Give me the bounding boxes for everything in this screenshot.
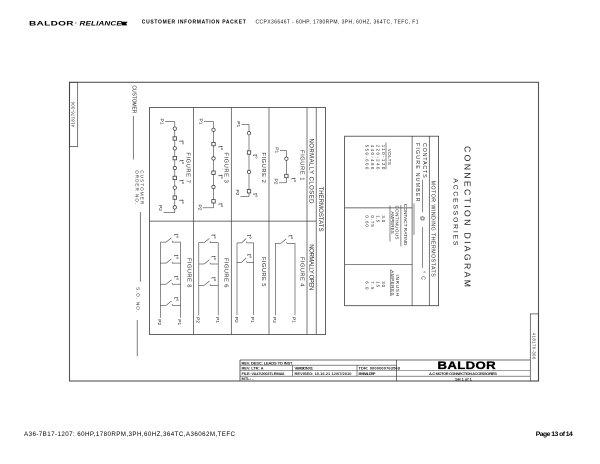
svg-text:t°: t° bbox=[251, 154, 259, 159]
svg-text:RELIANCE: RELIANCE bbox=[80, 21, 123, 28]
svg-text:REV. LTR: A: REV. LTR: A bbox=[242, 366, 264, 371]
svg-text:P1: P1 bbox=[159, 119, 165, 125]
svg-text:A-C MOTOR CONNECTION ACCESSORI: A-C MOTOR CONNECTION ACCESSORIES bbox=[429, 371, 497, 376]
svg-text:440-480: 440-480 bbox=[370, 145, 375, 170]
svg-text:ACCESSORIES: ACCESSORIES bbox=[451, 178, 458, 246]
svg-text:t°: t° bbox=[245, 235, 253, 240]
svg-text:P1: P1 bbox=[235, 121, 241, 127]
svg-text:VOLTS: VOLTS bbox=[387, 149, 392, 165]
svg-text:7.5: 7.5 bbox=[370, 281, 375, 290]
svg-text:t°: t° bbox=[172, 297, 180, 302]
svg-text:1.5: 1.5 bbox=[376, 215, 381, 222]
svg-text:A36-7B17-1207: 60HP,1780RPM,3P: A36-7B17-1207: 60HP,1780RPM,3PH,60HZ,364… bbox=[24, 431, 236, 438]
svg-text:CUSTOMER: CUSTOMER bbox=[131, 85, 137, 113]
svg-text:t°: t° bbox=[177, 140, 185, 145]
svg-text:550-600: 550-600 bbox=[364, 145, 369, 170]
svg-text:110-120: 110-120 bbox=[381, 145, 386, 170]
svg-text:P1: P1 bbox=[176, 319, 182, 325]
svg-text:t°: t° bbox=[287, 235, 295, 240]
svg-text:0.75: 0.75 bbox=[370, 215, 375, 227]
svg-text:P2: P2 bbox=[196, 205, 202, 211]
svg-text:CONNECTION DIAGRAM: CONNECTION DIAGRAM bbox=[463, 146, 473, 287]
svg-text:BALDOR: BALDOR bbox=[438, 359, 496, 372]
svg-text:220-240: 220-240 bbox=[375, 145, 380, 170]
svg-text:REV. DESC: LEADS TO INST: REV. DESC: LEADS TO INST bbox=[242, 360, 294, 365]
svg-text:FIGURE 6: FIGURE 6 bbox=[222, 258, 228, 288]
svg-text:t°: t° bbox=[177, 160, 185, 165]
svg-text:P1: P1 bbox=[291, 317, 297, 323]
svg-text:FIGURE 5: FIGURE 5 bbox=[260, 257, 266, 287]
svg-text:S.O. NO.: S.O. NO. bbox=[134, 287, 140, 312]
svg-text:15: 15 bbox=[376, 281, 381, 287]
svg-text:FIGURE 2: FIGURE 2 bbox=[260, 152, 266, 183]
svg-text:t°: t° bbox=[245, 254, 253, 259]
svg-text:CONTACT RATING: CONTACT RATING bbox=[402, 204, 408, 246]
svg-text:REVISED: 10.16.21 12/07/2010: REVISED: 10.16.21 12/07/2010 bbox=[295, 371, 353, 376]
svg-text:P2: P2 bbox=[195, 317, 201, 323]
svg-text:t°: t° bbox=[210, 256, 218, 261]
svg-text:NORMALLY OPEN: NORMALLY OPEN bbox=[308, 244, 314, 290]
svg-text:FIGURE 1: FIGURE 1 bbox=[298, 150, 304, 181]
svg-text:FIGURE 3: FIGURE 3 bbox=[222, 152, 228, 183]
svg-text:3.0: 3.0 bbox=[381, 215, 386, 222]
svg-text:t°: t° bbox=[172, 234, 180, 239]
svg-text:AMPERES: AMPERES bbox=[390, 211, 395, 233]
svg-text:t°: t° bbox=[177, 199, 185, 204]
svg-text:t°: t° bbox=[210, 277, 218, 282]
svg-text:TDR: 0000000763568: TDR: 0000000763568 bbox=[359, 366, 401, 371]
svg-text:FIGURE NUMBER: FIGURE NUMBER bbox=[414, 143, 420, 202]
svg-text:BY: BALDRP: BY: BALDRP bbox=[359, 371, 376, 376]
svg-text:t°: t° bbox=[217, 203, 225, 208]
svg-text:Page 13 of 14: Page 13 of 14 bbox=[536, 431, 573, 438]
svg-text:t°: t° bbox=[217, 146, 225, 151]
svg-text:P2: P2 bbox=[233, 317, 239, 323]
svg-text:FIGURE 4: FIGURE 4 bbox=[298, 257, 304, 287]
svg-text:P1: P1 bbox=[198, 119, 204, 125]
svg-text:0.60: 0.60 bbox=[365, 215, 370, 227]
svg-text:P2: P2 bbox=[273, 179, 279, 185]
svg-text:P2: P2 bbox=[157, 205, 163, 211]
svg-text:6.0: 6.0 bbox=[365, 281, 370, 290]
svg-text:t°: t° bbox=[251, 193, 259, 198]
svg-text:P1: P1 bbox=[249, 317, 255, 323]
svg-text:MOTOR WINDING THERMOSTATS: MOTOR WINDING THERMOSTATS bbox=[430, 181, 436, 278]
svg-text:VERSION: 01: VERSION: 01 bbox=[295, 366, 314, 371]
svg-text:418176-306: 418176-306 bbox=[532, 333, 537, 360]
svg-text:30: 30 bbox=[381, 281, 386, 287]
svg-text:MTL: -: MTL: - bbox=[242, 376, 255, 381]
svg-text:·: · bbox=[75, 21, 77, 27]
svg-text:t°: t° bbox=[177, 180, 185, 185]
svg-text:@: @ bbox=[419, 216, 425, 221]
svg-text:NORMALLY CLOSED: NORMALLY CLOSED bbox=[307, 139, 313, 205]
svg-text:t°: t° bbox=[172, 276, 180, 281]
svg-text:t°: t° bbox=[210, 234, 218, 239]
svg-text:t°: t° bbox=[172, 255, 180, 260]
svg-text:CCPX36646T - 60HP, 1780RPM, 3P: CCPX36646T - 60HP, 1780RPM, 3PH, 60HZ, 3… bbox=[256, 20, 419, 26]
svg-text:THERMOSTATS: THERMOSTATS bbox=[317, 187, 323, 232]
svg-text:P1: P1 bbox=[274, 147, 280, 153]
svg-text:t°: t° bbox=[290, 178, 298, 183]
svg-text:FIGURE 8: FIGURE 8 bbox=[185, 258, 191, 288]
svg-text:P2: P2 bbox=[234, 190, 240, 196]
svg-text:BALDOR: BALDOR bbox=[29, 20, 74, 27]
svg-text:418176-306: 418176-306 bbox=[70, 101, 75, 127]
svg-text:ORDER NO.: ORDER NO. bbox=[135, 170, 140, 204]
svg-text:P2: P2 bbox=[271, 317, 277, 323]
svg-text:CUSTOMER INFORMATION PACKET: CUSTOMER INFORMATION PACKET bbox=[142, 20, 246, 26]
svg-text:P1: P1 bbox=[214, 317, 220, 323]
svg-text:CONTACTS: CONTACTS bbox=[421, 143, 427, 178]
svg-text:FIGURE 7: FIGURE 7 bbox=[184, 152, 190, 183]
svg-text:SH 1 of 1: SH 1 of 1 bbox=[455, 376, 472, 381]
svg-text:P2: P2 bbox=[156, 319, 162, 325]
svg-text:°C: °C bbox=[419, 271, 425, 280]
